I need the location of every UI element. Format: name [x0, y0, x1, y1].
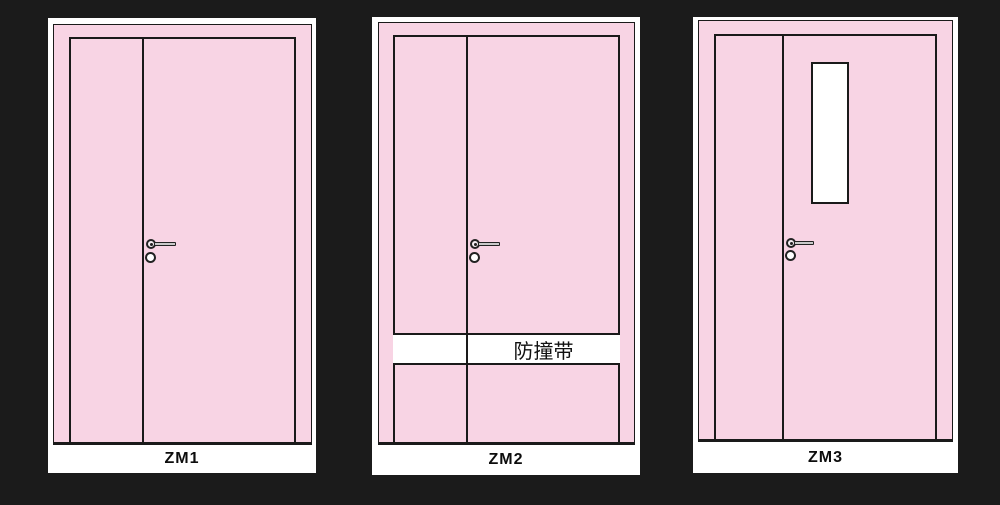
handle-lever-icon [154, 242, 176, 246]
door-elevation-drawing: ZM1 防撞带 ZM2 ZM3 [0, 0, 1000, 505]
meeting-stile [782, 34, 784, 439]
door-leaves [393, 35, 620, 442]
door-panel-zm1: ZM1 [48, 18, 316, 473]
meeting-stile [466, 35, 468, 442]
door-label: ZM2 [372, 445, 640, 475]
handle-lever-icon [478, 242, 500, 246]
meeting-stile [142, 37, 144, 442]
door-label: ZM3 [693, 442, 958, 473]
door-leaves [69, 37, 296, 442]
handle-lever-icon [794, 241, 814, 245]
lock-cylinder-icon [785, 250, 796, 261]
handle-spindle-icon [474, 243, 477, 246]
bumper-strip-label: 防撞带 [467, 335, 620, 363]
door-label: ZM1 [48, 445, 316, 473]
lock-cylinder-icon [145, 252, 156, 263]
door-panel-zm2: 防撞带 ZM2 [372, 17, 640, 475]
lock-cylinder-icon [469, 252, 480, 263]
bumper-strip: 防撞带 [393, 333, 620, 365]
vision-panel-window [811, 62, 849, 204]
handle-spindle-icon [150, 243, 153, 246]
handle-spindle-icon [790, 242, 793, 245]
door-panel-zm3: ZM3 [693, 17, 958, 473]
